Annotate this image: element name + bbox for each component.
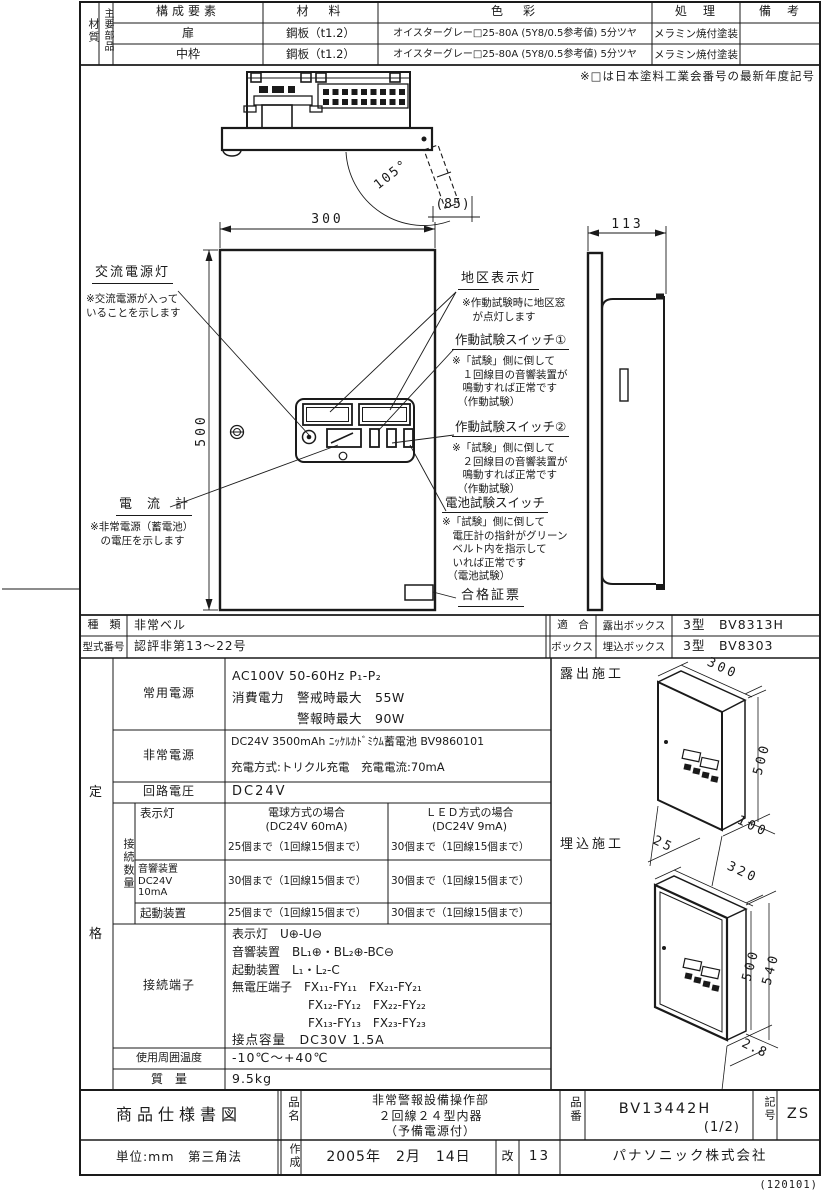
spec-conn-group-label: 接続数量 <box>115 838 134 890</box>
material-row-process: メラミン焼付塗装 <box>652 28 740 40</box>
corner-revision-code: (120101) <box>660 1179 818 1191</box>
surface-dim-height: 500 <box>748 729 778 791</box>
spec-value-normal-power: AC100V 50-60Hz P₁-P₂ 消費電力 警戒時最大 55W 警報時最… <box>232 665 405 730</box>
materials-header-component: 構成要素 <box>113 5 263 19</box>
paint-code-note: ※□は日本塗料工業会番号の最新年度記号 <box>480 70 815 83</box>
conn-value-bulb: 30個まで（1回線15個まで） <box>228 875 366 887</box>
terminal-line: 接点容量 DC30V 1.5A <box>232 1033 385 1047</box>
material-row-color: オイスターグレー□25-80A (5Y8/0.5参考値) 5分ツヤ <box>378 49 652 61</box>
dim-door-width: (85) <box>428 198 478 213</box>
terminal-line: 無電圧端子 FX₁₁-FY₁₁ FX₂₁-FY₂₁ <box>232 981 422 995</box>
conn-row-label: 音響装置 DC24V 10mA <box>138 864 178 899</box>
product-number-page: (1/2) <box>585 1121 740 1136</box>
callout-approval-sticker: 合格証票 <box>458 589 524 607</box>
spec-group-label-top: 定 <box>89 786 102 801</box>
spec-value-emergency-power-1: DC24V 3500mAh ﾆｯｹﾙｶﾄﾞﾐｳﾑ蓄電池 BV9860101 <box>231 736 484 749</box>
revision-number: 13 <box>519 1149 560 1165</box>
product-number-label: 品番 <box>564 1096 582 1123</box>
conn-value-bulb: 25個まで（1回線15個まで） <box>228 907 366 919</box>
conn-value-bulb: 25個まで（1回線15個まで） <box>228 841 366 853</box>
model-value: 認評非第13～22号 <box>134 640 247 654</box>
materials-header-remarks: 備 考 <box>740 5 820 19</box>
callout-battery-test-switch: 電池試験スイッチ <box>442 496 548 513</box>
created-date: 2005年 2月 14日 <box>301 1149 496 1165</box>
flush-dim-protrusion: 2.8 <box>725 1031 782 1068</box>
symbol-value: ZS <box>777 1106 820 1123</box>
product-name-label: 品名 <box>282 1096 300 1123</box>
created-label: 作成 <box>283 1143 300 1169</box>
spec-group-label-bottom: 格 <box>89 928 102 943</box>
flush-install-label: 埋込施工 <box>560 838 624 853</box>
material-row-color: オイスターグレー□25-80A (5Y8/0.5参考値) 5分ツヤ <box>378 28 652 40</box>
kind-label: 種 類 <box>82 619 126 632</box>
spec-value-circuit-voltage: DC24V <box>232 785 287 800</box>
terminal-line: FX₁₃-FY₁₃ FX₂₃-FY₂₃ <box>308 1017 426 1031</box>
units-projection: 単位:mm 第三角法 <box>80 1150 278 1164</box>
model-label: 型式番号 <box>81 641 126 653</box>
dimension-lines <box>203 222 666 610</box>
material-row-material: 鋼板（t1.2） <box>263 48 378 61</box>
conn-led-header: ＬＥＤ方式の場合 (DC24V 9mA) <box>390 806 549 834</box>
callout-battery-test-switch-note: ※「試験」側に倒して 電圧計の指針がグリーン ベルト内を指示して いれば正常です… <box>442 516 567 584</box>
callout-ac-power-lamp: 交流電源灯 <box>92 266 173 284</box>
surface-install-label: 露出施工 <box>560 668 624 683</box>
conn-row-label: 起動装置 <box>140 907 186 920</box>
flush-dim-width: 320 <box>712 854 773 893</box>
side-view <box>588 253 664 610</box>
box-group-label-1: 適 合 <box>550 619 596 631</box>
callout-ammeter-note: ※非常電源（蓄電池） の電圧を示します <box>90 520 193 548</box>
dim-side-depth: 113 <box>585 218 670 233</box>
dim-front-height: 500 <box>195 383 210 478</box>
front-view <box>220 250 435 610</box>
flush-box-name: 埋込ボックス <box>596 641 672 653</box>
callout-test-switch-2: 作動試験スイッチ② <box>452 420 569 437</box>
leader-lines <box>170 291 456 598</box>
kind-value: 非常ベル <box>134 619 186 633</box>
surface-dim-offset: 25 <box>639 829 687 862</box>
material-row-component: 中枠 <box>113 48 263 62</box>
product-name: 非常警報設備操作部 ２回線２４型内器 （予備電源付） <box>301 1093 560 1140</box>
callout-ammeter: 電 流 計 <box>116 498 192 516</box>
material-row-process: メラミン焼付塗装 <box>652 49 740 61</box>
surface-dim-width: 300 <box>692 650 753 689</box>
terminal-line: 表示灯 U⊕-U⊖ <box>232 928 322 942</box>
spec-label-normal-power: 常用電源 <box>113 687 225 701</box>
materials-header-color: 色 彩 <box>378 5 652 19</box>
conn-bulb-header: 電球方式の場合 (DC24V 60mA) <box>227 806 386 834</box>
callout-test-switch-1-note: ※「試験」側に倒して １回線目の音響装置が 鳴動すれば正常です （作動試験） <box>452 355 568 409</box>
materials-header-process: 処 理 <box>652 5 740 19</box>
callout-test-switch-2-note: ※「試験」側に倒して ２回線目の音響装置が 鳴動すれば正常です （作動試験） <box>452 442 568 496</box>
box-group-label-2: ボックス <box>548 641 596 653</box>
terminal-line: FX₁₂-FY₁₂ FX₂₂-FY₂₂ <box>308 999 426 1013</box>
spec-label-mass: 質 量 <box>113 1073 225 1087</box>
spec-value-ambient-temp: -10℃～+40℃ <box>232 1051 328 1065</box>
spec-label-ambient-temp: 使用周囲温度 <box>113 1052 225 1065</box>
revision-label: 改 <box>496 1150 519 1164</box>
spec-label-circuit-voltage: 回路電圧 <box>113 785 225 799</box>
symbol-label: 記号 <box>755 1096 775 1122</box>
dim-front-width: 300 <box>280 213 375 228</box>
material-row-component: 扉 <box>113 27 263 41</box>
doc-type-title: 商品仕様書図 <box>80 1106 278 1124</box>
callout-test-switch-1: 作動試験スイッチ① <box>452 333 569 350</box>
material-row-material: 鋼板（t1.2） <box>263 27 378 40</box>
conn-value-led: 30個まで（1回線15個まで） <box>391 841 529 853</box>
callout-zone-lamp-note: ※作動試験時に地区窓 が点灯します <box>462 296 565 324</box>
spec-sheet-page: 材質 主要部品 構成要素 材 料 色 彩 処 理 備 考 扉 鋼板（t1.2） … <box>0 0 822 1200</box>
conn-value-led: 30個まで（1回線15個まで） <box>391 907 529 919</box>
spec-value-emergency-power-2: 充電方式:トリクル充電 充電電流:70mA <box>231 761 445 774</box>
surface-dim-depth: 100 <box>722 808 783 847</box>
surface-box-value: 3型 BV8313H <box>683 618 784 632</box>
terminal-line: 音響装置 BL₁⊕・BL₂⊕-BC⊖ <box>232 946 394 960</box>
terminal-line: 起動装置 L₁・L₂-C <box>232 964 340 978</box>
conn-row-label: 表示灯 <box>140 807 175 820</box>
company-name: パナソニック株式会社 <box>560 1149 820 1165</box>
callout-ac-power-lamp-note: ※交流電源が入って いることを示します <box>86 292 181 320</box>
product-number: BV13442H <box>585 1101 745 1118</box>
spec-label-emergency-power: 非常電源 <box>113 749 225 763</box>
materials-header-material: 材 料 <box>263 5 378 19</box>
materials-row-group-label: 主要部品 <box>98 8 113 52</box>
conn-value-led: 30個まで（1回線15個まで） <box>391 875 529 887</box>
materials-corner-label: 材質 <box>81 18 99 44</box>
spec-label-terminals: 接続端子 <box>113 979 225 993</box>
surface-box-name: 露出ボックス <box>596 620 672 632</box>
spec-value-mass: 9.5kg <box>232 1072 272 1086</box>
callout-zone-lamp: 地区表示灯 <box>458 272 539 290</box>
dim-door-angle: 105° <box>364 151 420 200</box>
